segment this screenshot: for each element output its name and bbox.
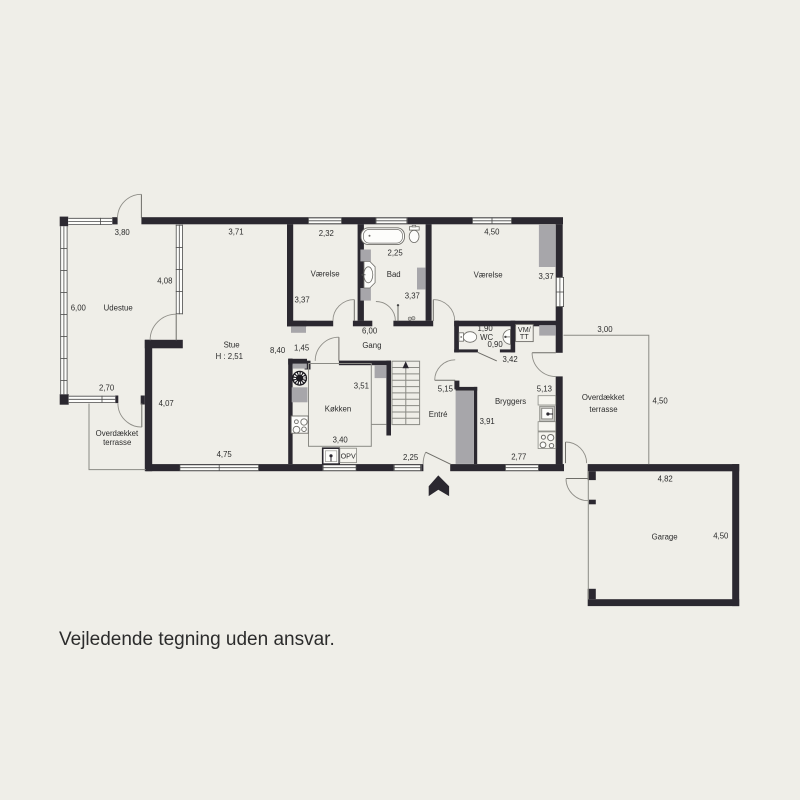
svg-text:2,70: 2,70 [99, 383, 115, 392]
svg-text:5,15: 5,15 [438, 384, 454, 393]
svg-text:H : 2,51: H : 2,51 [216, 352, 243, 361]
svg-text:terrasse: terrasse [589, 405, 617, 414]
svg-text:4,75: 4,75 [217, 450, 233, 459]
svg-text:4,50: 4,50 [713, 532, 729, 541]
svg-text:3,91: 3,91 [480, 417, 495, 426]
svg-text:TT: TT [520, 332, 529, 341]
svg-text:2,32: 2,32 [319, 229, 334, 238]
svg-text:3,71: 3,71 [228, 227, 243, 236]
svg-text:Bad: Bad [387, 270, 401, 279]
svg-text:5,13: 5,13 [537, 385, 552, 394]
svg-text:Overdækket: Overdækket [582, 393, 625, 402]
svg-text:Værelse: Værelse [311, 269, 340, 278]
svg-text:3,37: 3,37 [539, 272, 554, 281]
svg-text:3,42: 3,42 [503, 355, 518, 364]
svg-text:Gang: Gang [362, 341, 381, 350]
svg-text:Entré: Entré [429, 410, 448, 419]
svg-text:6,00: 6,00 [362, 326, 378, 335]
svg-text:Køkken: Køkken [325, 404, 351, 413]
svg-text:Garage: Garage [652, 533, 678, 542]
svg-text:4,50: 4,50 [484, 227, 500, 236]
svg-text:Udestue: Udestue [104, 303, 133, 312]
svg-text:4,82: 4,82 [658, 475, 673, 484]
svg-text:terrasse: terrasse [103, 438, 131, 447]
svg-text:3,51: 3,51 [354, 381, 369, 390]
svg-text:Vejledende tegning uden ansvar: Vejledende tegning uden ansvar. [59, 629, 335, 650]
svg-text:Stue: Stue [224, 340, 240, 349]
svg-text:Bryggers: Bryggers [495, 397, 526, 406]
svg-text:3,80: 3,80 [115, 228, 131, 237]
svg-text:2,25: 2,25 [388, 248, 404, 257]
svg-text:OPV: OPV [341, 451, 356, 460]
svg-text:1,45: 1,45 [294, 344, 310, 353]
svg-text:2,25: 2,25 [403, 453, 419, 462]
svg-text:3,37: 3,37 [295, 295, 310, 304]
svg-text:6,00: 6,00 [71, 304, 87, 313]
svg-text:3,37: 3,37 [405, 292, 420, 301]
svg-text:8,40: 8,40 [270, 346, 286, 355]
svg-text:3,00: 3,00 [597, 325, 613, 334]
svg-text:4,08: 4,08 [157, 277, 172, 286]
svg-text:0,90: 0,90 [488, 340, 504, 349]
svg-text:4,50: 4,50 [653, 396, 669, 405]
svg-text:Overdækket: Overdækket [96, 429, 139, 438]
svg-text:4,07: 4,07 [159, 399, 174, 408]
svg-text:1,90: 1,90 [478, 324, 494, 333]
svg-text:2,77: 2,77 [511, 453, 526, 462]
svg-text:Værelse: Værelse [474, 270, 503, 279]
svg-text:3,40: 3,40 [333, 435, 349, 444]
